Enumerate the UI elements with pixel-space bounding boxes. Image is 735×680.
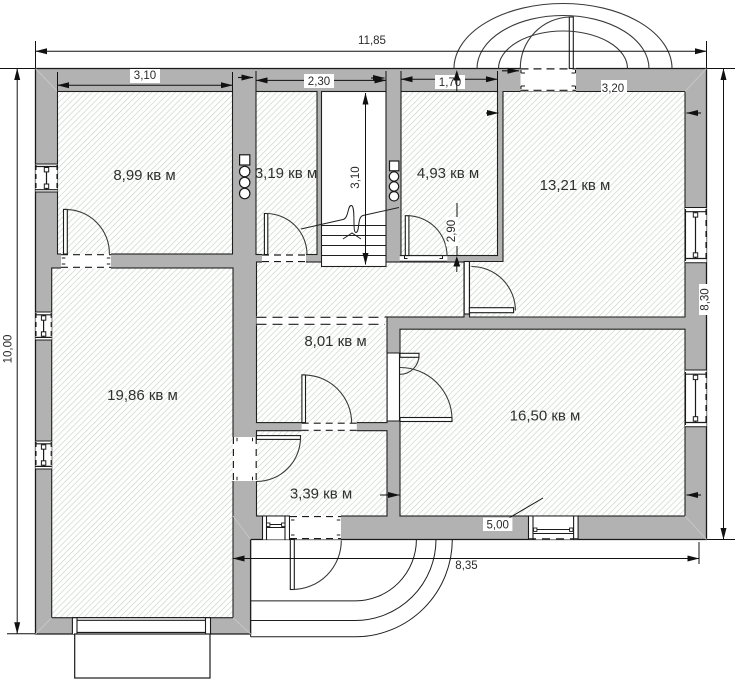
svg-text:8,99 кв м: 8,99 кв м — [113, 167, 175, 184]
svg-text:3,39 кв м: 3,39 кв м — [290, 486, 352, 503]
svg-text:16,50 кв м: 16,50 кв м — [510, 408, 581, 425]
svg-text:3,20: 3,20 — [602, 83, 624, 95]
svg-text:19,86 кв м: 19,86 кв м — [107, 387, 178, 404]
svg-text:2,30: 2,30 — [308, 76, 330, 88]
svg-text:3,10: 3,10 — [134, 70, 156, 82]
svg-text:13,21 кв м: 13,21 кв м — [540, 177, 611, 194]
svg-text:3,19 кв м: 3,19 кв м — [255, 165, 317, 182]
svg-text:3,10: 3,10 — [350, 166, 362, 188]
svg-text:8,30: 8,30 — [700, 288, 712, 310]
svg-text:8,01 кв м: 8,01 кв м — [304, 333, 366, 350]
svg-text:11,85: 11,85 — [358, 35, 386, 47]
svg-text:5,00: 5,00 — [487, 520, 509, 532]
svg-text:2,90: 2,90 — [446, 220, 458, 242]
svg-text:8,35: 8,35 — [455, 560, 477, 572]
svg-text:10,00: 10,00 — [3, 335, 15, 364]
svg-text:4,93 кв м: 4,93 кв м — [417, 165, 479, 182]
